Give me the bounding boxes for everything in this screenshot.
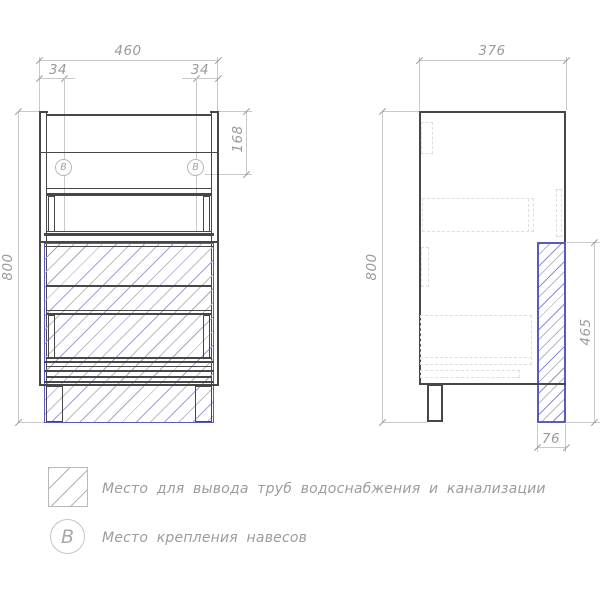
legend-hanger-label: Место крепления навесов (102, 530, 307, 546)
dim-offset-left-label: 34 (38, 62, 78, 78)
dimension-line (382, 111, 383, 423)
legend-pipe-zone-label: Место для вывода труб водоснабжения и ка… (102, 481, 546, 497)
pipe-zone-side (537, 242, 566, 423)
dimension-line (594, 242, 595, 423)
cabinet-line (39, 111, 48, 113)
niche-side-strip (48, 315, 55, 358)
dim-pipe-zone-height-label: 465 (578, 312, 594, 352)
dimension-line (39, 78, 75, 79)
dimension-line (537, 447, 566, 448)
dim-height-label: 800 (364, 247, 380, 287)
cabinet-line (46, 357, 212, 359)
cabinet-line (46, 310, 212, 311)
hidden-detail-dashed (528, 199, 529, 232)
cabinet-bottom-line (537, 383, 566, 385)
hidden-detail-dashed (421, 122, 433, 154)
dimension-line (182, 78, 218, 79)
dimension-line (18, 111, 19, 423)
hidden-detail-dashed (421, 247, 429, 287)
cabinet-line (44, 246, 214, 247)
extension-line (566, 57, 567, 110)
niche-side-strip (203, 315, 210, 358)
hidden-detail-dashed (556, 189, 562, 237)
extension-line (382, 422, 427, 423)
drawer-divider-line (46, 285, 212, 287)
hidden-detail-dashed (420, 357, 532, 358)
dim-height-label: 800 (0, 247, 16, 287)
extension-line (64, 78, 65, 232)
cabinet-line (44, 233, 214, 236)
hidden-detail-dashed (422, 198, 534, 232)
cabinet-line (46, 313, 212, 315)
dimension-line (39, 60, 218, 61)
hanger-marker: B (187, 159, 204, 176)
dim-hanger-drop-label: 168 (230, 119, 246, 159)
legend-hatch-swatch (48, 467, 88, 507)
dim-width-label: 460 (106, 43, 150, 59)
cabinet-leg (427, 384, 443, 422)
dim-pipe-zone-depth-label: 76 (531, 431, 571, 447)
dimension-line (419, 60, 567, 61)
cabinet-line (44, 381, 214, 383)
dim-offset-right-label: 34 (180, 62, 220, 78)
hidden-detail-dashed (420, 370, 520, 378)
hanger-marker: B (55, 159, 72, 176)
extension-line (196, 78, 197, 232)
niche-side-strip (203, 196, 210, 232)
cabinet-line (46, 376, 212, 378)
legend-hanger-marker: B (50, 519, 85, 554)
pipe-zone-front (44, 243, 214, 423)
cabinet-line (44, 370, 214, 372)
niche-side-strip (48, 196, 55, 232)
extension-line (419, 57, 420, 110)
cabinet-line (47, 193, 211, 196)
cabinet-line (47, 114, 211, 116)
extension-line (382, 111, 419, 112)
cabinet-leg (195, 386, 212, 422)
cabinet-line (47, 188, 211, 189)
dimension-line (246, 111, 247, 175)
extension-line (18, 422, 45, 423)
cabinet-line (44, 361, 214, 363)
cabinet-bottom-line (39, 384, 219, 386)
technical-drawing: 460 34 34 168 800 (0, 0, 600, 600)
cabinet-line (47, 231, 211, 232)
cabinet-line (210, 111, 219, 113)
dim-depth-label: 376 (470, 43, 514, 59)
cabinet-leg (46, 386, 63, 422)
cabinet-line (40, 152, 218, 153)
extension-line (18, 111, 39, 112)
cabinet-line (46, 366, 212, 367)
